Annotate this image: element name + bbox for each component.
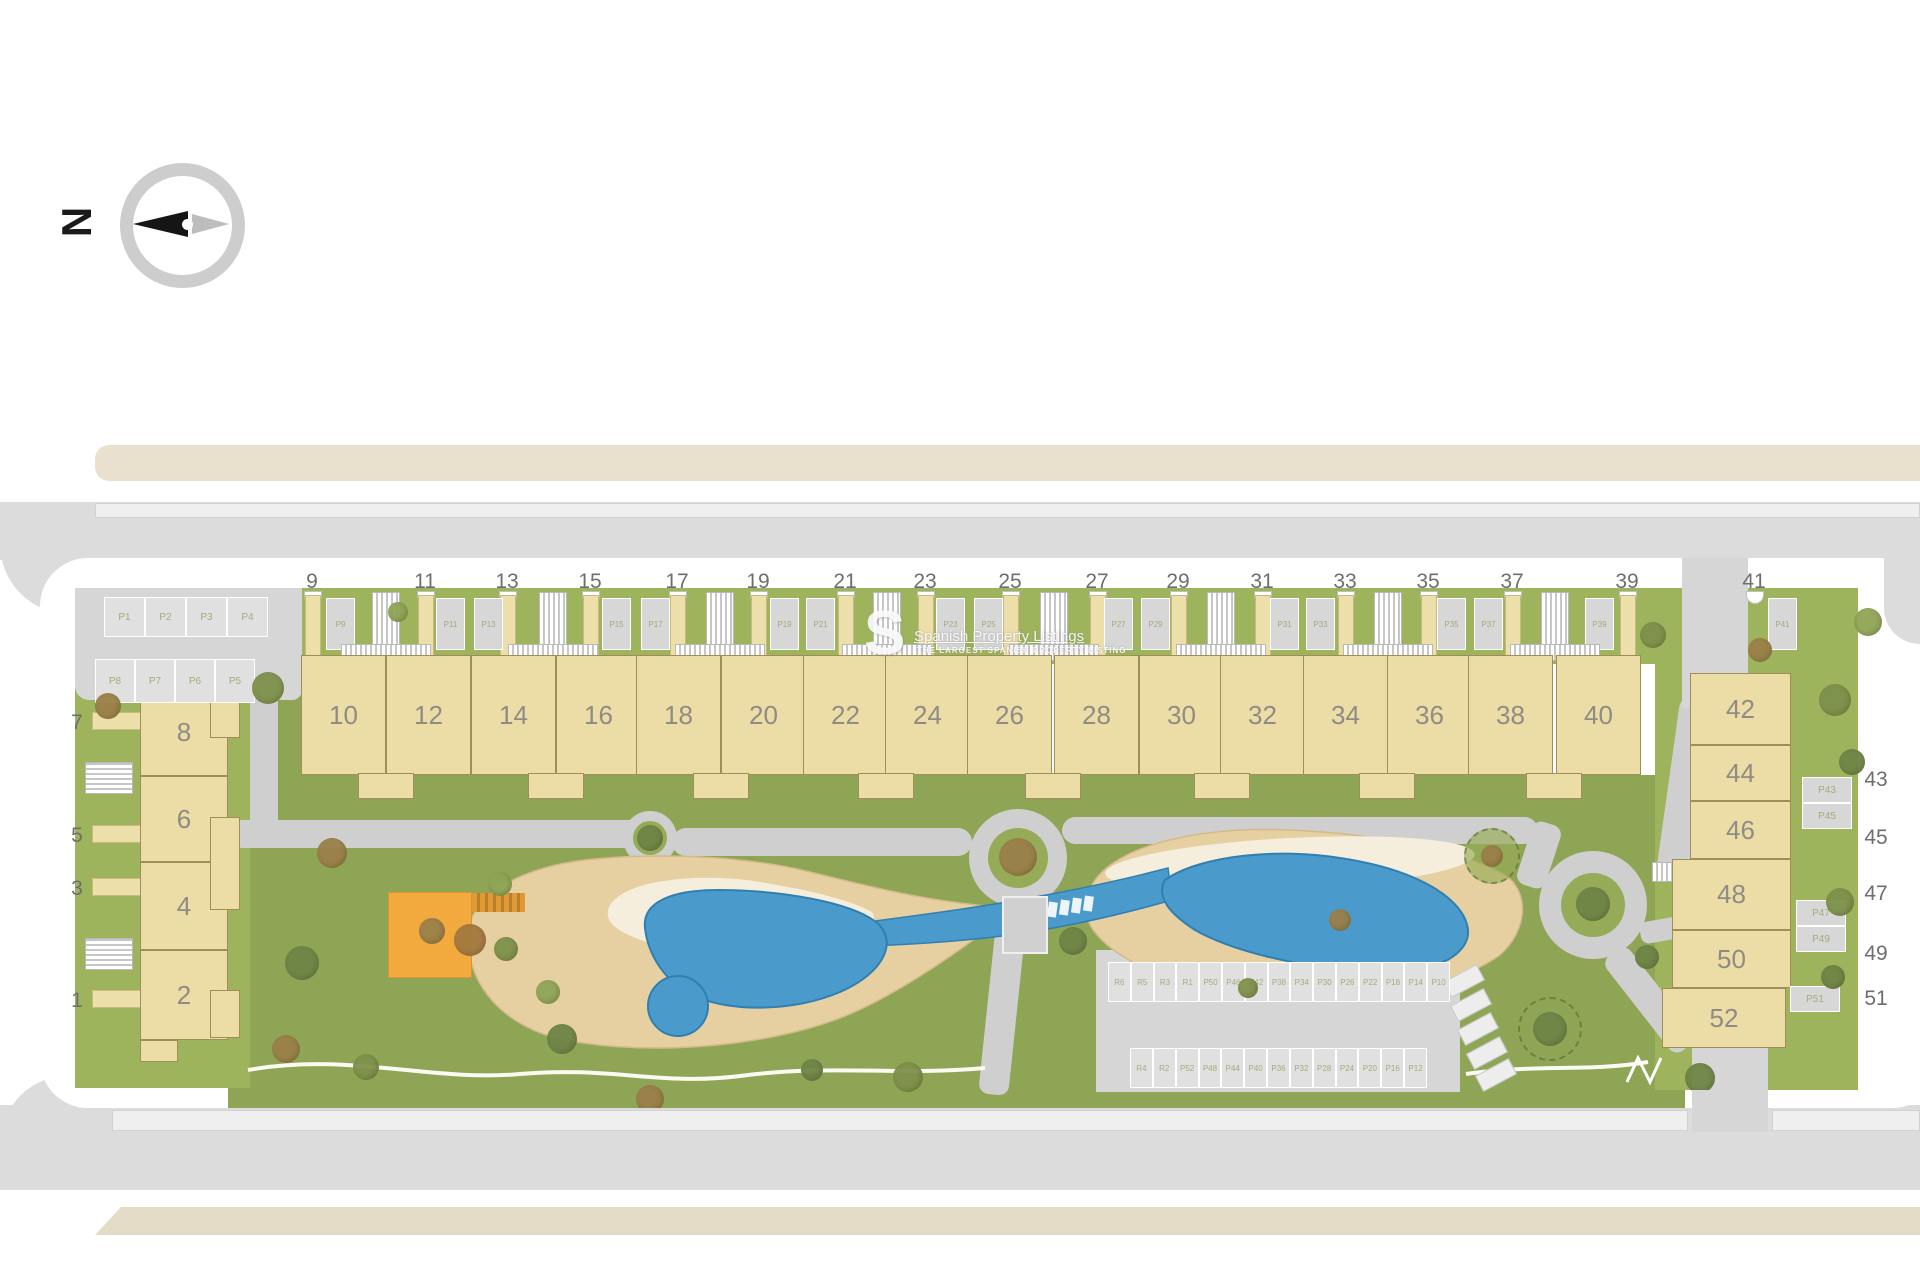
tree [1533,1012,1567,1046]
parking-stall-R1: R1 [1176,962,1199,1002]
parking-stall-P18: P18 [1382,962,1405,1002]
street-number-51: 51 [1858,987,1894,1011]
building-34: 34 [1303,655,1388,775]
parking-stall-P20: P20 [1358,1048,1381,1088]
compass-center-dot [182,219,193,230]
watermark-title: Spanish Property Listings [914,628,1084,645]
street-number-45: 45 [1858,826,1894,850]
tree [1685,1063,1715,1093]
parking-stall-P41: P41 [1768,598,1797,650]
building-annex [858,773,914,799]
sidewalk-top [95,503,1920,518]
street-number-7: 7 [62,711,92,735]
watermark-logo: S [864,598,905,669]
building-42: 42 [1690,673,1791,745]
parking-stall-P22: P22 [1359,962,1382,1002]
path-park-east [1062,817,1538,844]
building-annex [210,990,240,1038]
parking-stall-P2: P2 [145,597,186,637]
parking-stall-R2: R2 [1153,1048,1176,1088]
sidewalk-bottom-left [112,1110,1688,1131]
compass-needle-west [133,211,188,237]
tree [1826,888,1854,916]
building-22: 22 [803,655,888,775]
building-26: 26 [967,655,1052,775]
street-number-3: 3 [62,877,92,901]
tree [488,872,512,896]
tree [1576,887,1610,921]
tree [1819,684,1851,716]
driveway-south-connector [1692,1090,1768,1132]
parking-row-central-2: R4R2P52P48P44P40P36P32P28P24P20P16P12 [1130,1048,1427,1088]
path-court-corridor [250,692,278,834]
parking-stall-P10: P10 [1427,962,1450,1002]
tree [353,1054,379,1080]
tree [419,918,445,944]
building-32: 32 [1220,655,1305,775]
stairs-left-lower [85,938,133,970]
parking-stall-P48: P48 [1199,1048,1222,1088]
building-40: 40 [1556,655,1641,775]
building-44: 44 [1690,745,1791,801]
building-52: 52 [1662,988,1786,1048]
tree [1640,622,1666,648]
parking-stall-P26: P26 [1336,962,1359,1002]
path-park-west [228,820,648,848]
compass-north-label: N [53,207,101,237]
parking-stall-P43: P43 [1802,777,1852,803]
building-50: 50 [1672,930,1791,988]
tree [1238,978,1258,998]
parking-stall-P32: P32 [1290,1048,1313,1088]
parking-row-central-1: R6R5R3R1P50P46P42P38P34P30P26P22P18P14P1… [1108,962,1450,1002]
tree [637,825,663,851]
tree [636,1085,664,1108]
parking-stall-P50: P50 [1199,962,1222,1002]
parking-stall-P16: P16 [1381,1048,1404,1088]
street-number-47: 47 [1858,882,1894,906]
building-annex [1194,773,1250,799]
street-number-49: 49 [1858,942,1894,966]
tree [536,980,560,1004]
watermark-subtitle: THE LARGEST SPANISH PROPERTY LISTING [917,646,1127,655]
parking-stall-P36: P36 [1267,1048,1290,1088]
parking-stall-P45: P45 [1802,803,1852,829]
parking-stall-P5: P5 [215,659,255,703]
building-46: 46 [1690,801,1791,859]
parking-stall-P27: P27 [1104,598,1133,650]
building-annex [693,773,749,799]
parking-stall-R6: R6 [1108,962,1131,1002]
parking-row-left-1: P1P2P3P4 [104,597,268,637]
building-16: 16 [556,655,641,775]
parking-stall-P52: P52 [1176,1048,1199,1088]
street-number-5: 5 [62,824,92,848]
street-number-1: 1 [62,989,92,1013]
tree [388,602,408,622]
building-annex [358,773,414,799]
parking-stall-P3: P3 [186,597,227,637]
parking-stall-P11: P11 [436,598,465,650]
porch-column [1620,595,1636,661]
tree [252,672,284,704]
parking-stall-P37: P37 [1474,598,1503,650]
tree [1748,638,1772,662]
building-36: 36 [1387,655,1472,775]
street-number-43: 43 [1858,768,1894,792]
building-20: 20 [721,655,806,775]
parking-stall-P29: P29 [1141,598,1170,650]
parking-stall-P31: P31 [1270,598,1299,650]
building-annex [1359,773,1415,799]
building-annex [528,773,584,799]
parking-stall-P7: P7 [135,659,175,703]
tree [1854,608,1882,636]
parking-stall-P17: P17 [641,598,670,650]
parking-stall-P13: P13 [474,598,503,650]
tree [285,946,319,980]
sidewalk-bottom-right [1772,1110,1920,1131]
parking-row-left-2: P8P7P6P5 [95,659,255,703]
tree [1059,927,1087,955]
porch-column [305,595,321,661]
road-top [95,445,1920,481]
compass-needle-east [192,214,229,234]
parking-stall-P21: P21 [806,598,835,650]
building-14: 14 [471,655,556,775]
tree [1839,749,1865,775]
tree [547,1024,577,1054]
building-38: 38 [1468,655,1553,775]
parking-stall-P49: P49 [1796,926,1846,952]
parking-stall-P33: P33 [1306,598,1335,650]
tree [801,1059,823,1081]
building-12: 12 [386,655,471,775]
parking-stall-P12: P12 [1404,1048,1427,1088]
building-28: 28 [1054,655,1139,775]
parking-stall-P9: P9 [326,598,355,650]
tree [1635,945,1659,969]
tree [1329,909,1351,931]
tree [494,937,518,961]
parking-stall-P1: P1 [104,597,145,637]
building-18: 18 [636,655,721,775]
parking-stall-P6: P6 [175,659,215,703]
building-annex [1526,773,1582,799]
site-plan-canvas: 911131517192123252729313335373941 P9P11P… [0,0,1920,1280]
building-48: 48 [1672,859,1791,930]
building-annex [1025,773,1081,799]
parking-stall-R3: R3 [1154,962,1177,1002]
building-30: 30 [1139,655,1224,775]
building-annex [140,1040,178,1062]
building-10: 10 [301,655,386,775]
building-24: 24 [885,655,970,775]
tree [95,693,121,719]
parking-stall-P14: P14 [1404,962,1427,1002]
road-bottom [95,1207,1920,1235]
tree [999,838,1037,876]
building-annex [210,817,240,910]
tree [317,838,347,868]
parking-stall-P34: P34 [1290,962,1313,1002]
parking-stall-R5: R5 [1131,962,1154,1002]
parking-stall-P51: P51 [1790,986,1840,1012]
tree [454,924,486,956]
parking-stall-P38: P38 [1268,962,1291,1002]
parking-stall-P24: P24 [1336,1048,1359,1088]
parking-stall-P40: P40 [1244,1048,1267,1088]
parking-stall-P30: P30 [1313,962,1336,1002]
tree [893,1062,923,1092]
parking-stall-P4: P4 [227,597,268,637]
parking-stall-P39: P39 [1585,598,1614,650]
parking-stall-P15: P15 [602,598,631,650]
pool-bridge [1002,896,1048,954]
parking-stall-R4: R4 [1130,1048,1153,1088]
parking-stall-P44: P44 [1221,1048,1244,1088]
tree [1481,845,1503,867]
parking-stall-P28: P28 [1313,1048,1336,1088]
path-park-mid [672,828,972,856]
tree [272,1035,300,1063]
parking-stall-P35: P35 [1437,598,1466,650]
parking-stall-P19: P19 [770,598,799,650]
tree [1821,965,1845,989]
stairs-left-upper [85,762,133,794]
